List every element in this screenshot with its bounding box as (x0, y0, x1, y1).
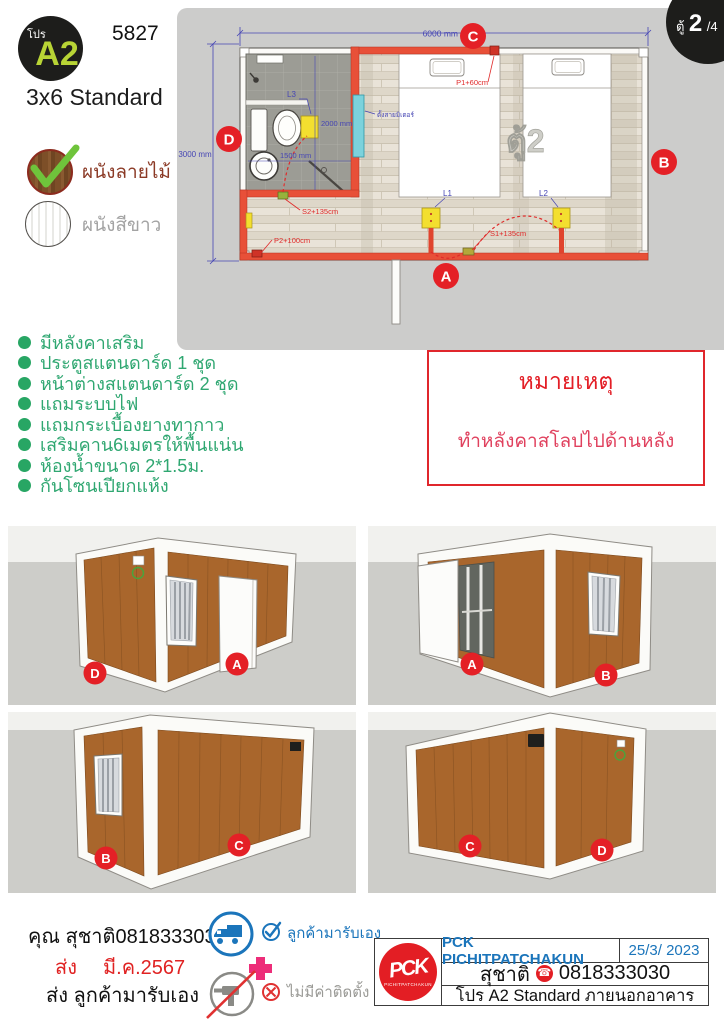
p1-marker (490, 46, 499, 55)
wall-plate (617, 740, 625, 747)
washing-machine (250, 152, 278, 180)
l2-dot (560, 220, 562, 222)
badge-d-letter: D (597, 843, 606, 858)
l2-light-box (553, 208, 570, 228)
open-door (418, 560, 458, 662)
unit-suffix: /4 (707, 19, 718, 34)
delivery-icons: ลูกค้ามารับเอง ไม่มีค่าติดตั้ง (205, 905, 390, 1024)
note-body: ทำหลังคาสโลปไปด้านหลัง (429, 426, 703, 456)
l2-label: L2 (539, 189, 548, 198)
white-wall-label: ผนังสีขาว (82, 210, 161, 240)
wall-red-bath-bottom (240, 190, 359, 197)
l1-light-box (422, 208, 440, 228)
badge-d-letter: D (90, 666, 99, 681)
truck-body (227, 925, 242, 937)
l1-stem (429, 228, 434, 253)
dim-bath-depth: 1500 mm (280, 151, 311, 160)
sink-counter (251, 109, 267, 151)
badge-a-letter: A (232, 657, 242, 672)
bathroom-vent (257, 55, 283, 63)
brand-badge-main: A2 (32, 30, 82, 78)
plus-icon (249, 957, 272, 980)
window-bar (603, 578, 604, 631)
view-3d-back-left: B C (0, 700, 362, 895)
white-wall-swatch (25, 201, 71, 247)
note-title: หมายเหตุ (429, 364, 703, 400)
dim-bath-width: 2000 mm (321, 119, 352, 128)
pickup-note: ลูกค้ามารับเอง (287, 925, 381, 942)
product-line: โปร A2 Standard ภายนอกอาคาร (442, 985, 708, 1006)
phone-icon: ☎ (536, 965, 553, 982)
badge-c-letter: C (465, 839, 475, 854)
wall-plate (133, 556, 144, 565)
badge-c-letter: C (468, 29, 479, 46)
drill-bit (214, 989, 222, 993)
bullet-icon (18, 418, 31, 431)
contact-line: คุณ สุชาติ0818333030 (28, 920, 227, 952)
bullet-icon (18, 377, 31, 390)
feature-list: มีหลังคาเสริม ประตูสแตนดาร์ด 1 ชุด หน้าต… (18, 332, 348, 496)
badge-a-letter: A (467, 657, 477, 672)
meter-label: ตั้งสายมิเตอร์ (377, 110, 414, 119)
model-code: 5827 (112, 22, 159, 46)
view-3d-door-open: A B (362, 520, 724, 705)
badge-b-letter: B (659, 155, 670, 172)
l1-dot (430, 213, 432, 215)
truck-wheel (232, 938, 238, 944)
logo-monogram: PCK (387, 954, 428, 983)
bullet-icon (18, 397, 31, 410)
badge-b-letter: B (101, 851, 110, 866)
check-icon (22, 136, 84, 198)
company-logo: PCK PICHITPATCHAKUN (379, 943, 437, 1001)
bullet-icon (18, 438, 31, 451)
l2-stem (559, 228, 564, 253)
window-bar (189, 583, 190, 640)
company-info-table: PCK PICHITPATCHAKUN PCK PICHITPATCHAKUN … (374, 938, 709, 1006)
p2-label: P2+100cm (274, 236, 310, 245)
no-install-note: ไม่มีค่าติดตั้ง (286, 981, 369, 1001)
wall-red-bottom (240, 253, 648, 260)
window-bar (609, 578, 610, 632)
document-date: 25/3/ 2023 (620, 939, 708, 962)
truck-wheel (217, 938, 223, 944)
spec-sheet-page: โปร A2 5827 3x6 Standard ผนังลายไม้ ผนัง… (0, 0, 724, 1024)
bullet-icon (18, 356, 31, 369)
feature-text: กันโซนเปียกแห้ง (40, 471, 169, 500)
badge-b-letter: B (601, 668, 610, 683)
bullet-icon (18, 479, 31, 492)
brand-badge: โปร A2 (18, 16, 83, 81)
bathroom-switch-box (301, 116, 318, 138)
entry-door-leaf (392, 260, 400, 324)
badge-c-letter: C (234, 838, 244, 853)
bullet-icon (18, 336, 31, 349)
badge-d-letter: D (224, 132, 235, 149)
unit-number: 2 (689, 10, 702, 37)
view-3d-back-right: C D (362, 700, 724, 895)
toilet (273, 110, 301, 146)
s2-label: S2+135cm (302, 207, 338, 216)
bathroom-partition (246, 100, 308, 105)
l3-label: L3 (287, 90, 296, 99)
view-3d-front-left: D A (0, 520, 362, 705)
truck-window (217, 931, 221, 935)
bullet-icon (18, 459, 31, 472)
s1-label: S1+135cm (490, 229, 526, 238)
note-box: หมายเหตุ ทำหลังคาสโลปไปด้านหลัง (427, 350, 705, 486)
model-name: 3x6 Standard (26, 84, 163, 111)
company-name: PCK PICHITPATCHAKUN (442, 939, 619, 962)
badge-a-letter: A (441, 269, 452, 286)
p2-plug (252, 250, 262, 257)
plan-watermark: ตู้2 (506, 123, 545, 162)
s2-switch (278, 192, 288, 199)
corner-fitting (639, 48, 648, 57)
pickup-line: ส่ง ลูกค้ามารับเอง (46, 979, 199, 1011)
dim-height: 3000 mm (178, 150, 212, 159)
p1-label: P1+60cm (456, 78, 488, 87)
vent-box (290, 742, 301, 751)
l2-dot (560, 213, 562, 215)
l1-label: L1 (443, 189, 452, 198)
dim-width: 6000 mm (423, 29, 458, 39)
meter-panel (353, 95, 364, 157)
wood-wall-label: ผนังลายไม้ (82, 157, 171, 187)
floor-plan: ตู้2 (175, 0, 724, 350)
unit-prefix: ตู้ (676, 19, 684, 35)
vent-box (528, 734, 544, 747)
l1-dot (430, 220, 432, 222)
left-wall-box (246, 213, 252, 228)
